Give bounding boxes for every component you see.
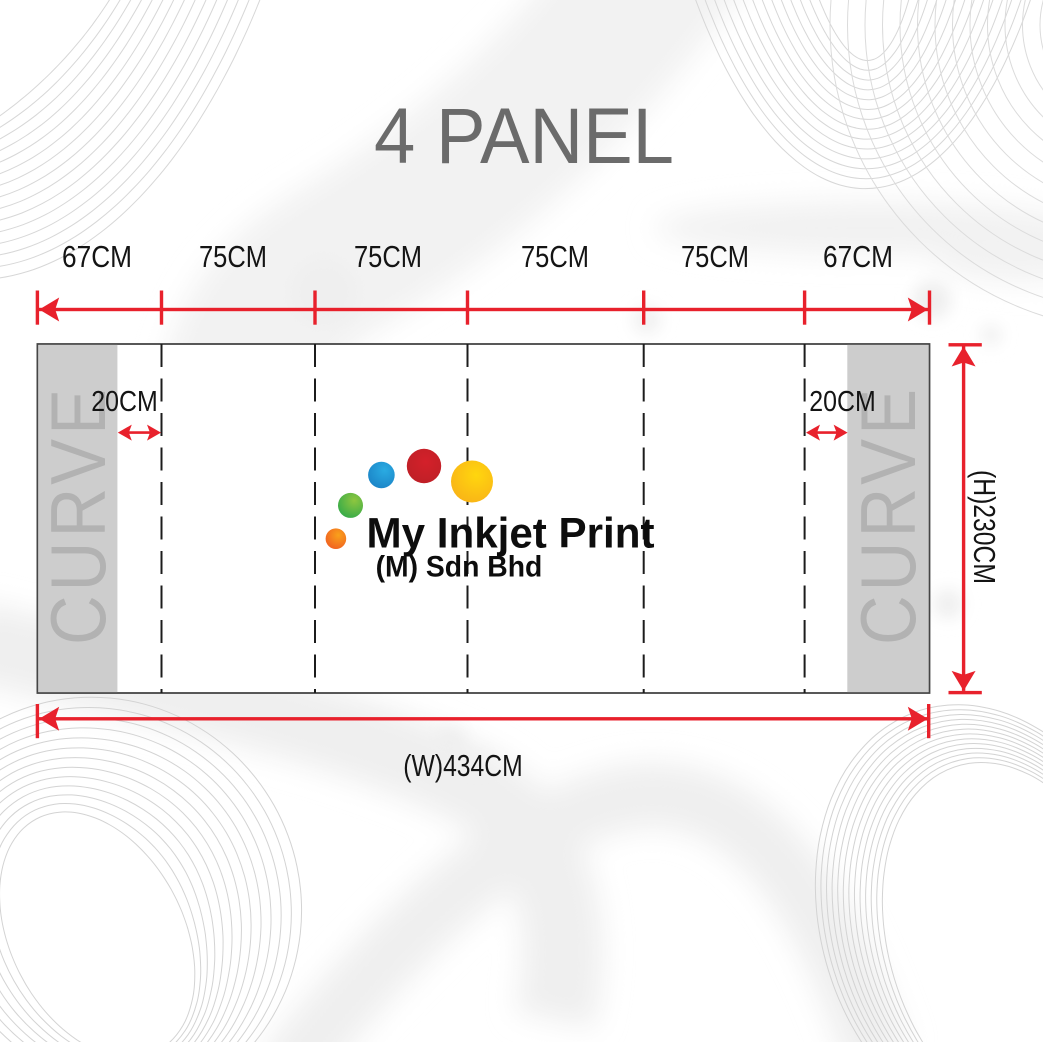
svg-text:4 PANEL: 4 PANEL	[374, 91, 674, 180]
svg-text:(M) Sdn Bhd: (M) Sdn Bhd	[376, 551, 543, 584]
svg-text:20CM: 20CM	[91, 386, 158, 418]
svg-text:75CM: 75CM	[681, 240, 749, 274]
svg-text:67CM: 67CM	[62, 240, 132, 274]
svg-text:(H)230CM: (H)230CM	[967, 470, 1001, 584]
svg-text:CURVE: CURVE	[34, 389, 122, 645]
svg-text:CURVE: CURVE	[844, 389, 932, 645]
svg-text:75CM: 75CM	[199, 240, 267, 274]
svg-text:20CM: 20CM	[809, 386, 876, 418]
svg-text:(W)434CM: (W)434CM	[403, 748, 522, 783]
svg-text:75CM: 75CM	[354, 240, 422, 274]
svg-text:67CM: 67CM	[823, 240, 893, 274]
svg-text:75CM: 75CM	[521, 240, 589, 274]
